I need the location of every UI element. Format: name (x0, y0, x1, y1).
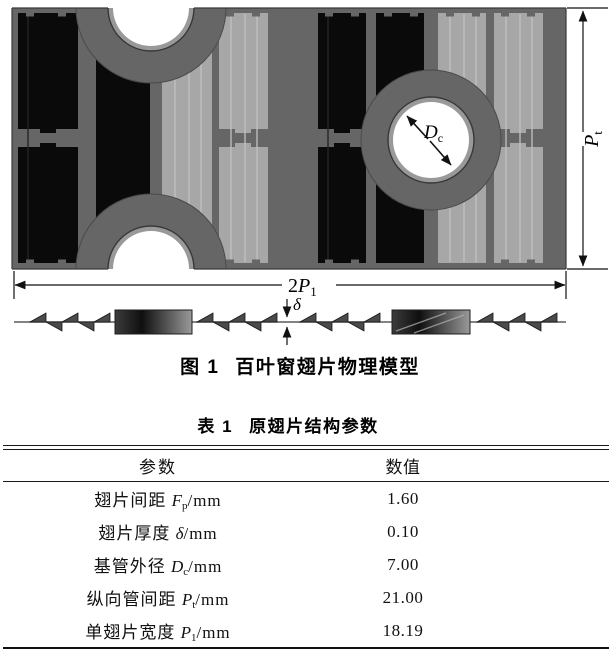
table-row: 翅片间距 Fp/mm 1.60 (3, 482, 609, 515)
column-header-value: 数值 (313, 453, 493, 478)
value-cell: 21.00 (313, 588, 493, 608)
parameter-cell: 翅片间距 Fp/mm (3, 486, 313, 512)
value-cell: 0.10 (313, 522, 493, 542)
figure-caption: 图 1百叶窗翅片物理模型 (0, 352, 600, 379)
parameter-cell: 翅片厚度 δ/mm (3, 519, 313, 544)
column-header-parameter: 参数 (3, 453, 313, 478)
table-bottom-rule (3, 647, 609, 649)
table-row: 单翅片宽度 P1/mm 18.19 (3, 614, 609, 647)
tube-section-block (392, 310, 470, 334)
table-title: 表 1原翅片结构参数 (0, 412, 576, 437)
fin-model-drawing: Dc Pt 2P1 (0, 0, 612, 348)
value-cell: 1.60 (313, 489, 493, 509)
table-row: 基管外径 Dc/mm 7.00 (3, 548, 609, 581)
parameter-cell: 纵向管间距 Pt/mm (3, 585, 313, 611)
parameter-table: 参数 数值 翅片间距 Fp/mm 1.60 翅片厚度 δ/mm 0.10 基管外… (3, 445, 609, 649)
fin-cross-section: δ (14, 295, 566, 345)
fin-figure: Dc Pt 2P1 (0, 0, 612, 348)
dim-label-pt: Pt (581, 131, 605, 148)
dim-label-delta: δ (293, 295, 302, 314)
tube-section-block (115, 310, 192, 334)
value-cell: 18.19 (313, 621, 493, 641)
figure-caption-text: 百叶窗翅片物理模型 (235, 357, 420, 378)
table-row: 纵向管间距 Pt/mm 21.00 (3, 581, 609, 614)
figure-caption-label: 图 1 (180, 357, 219, 378)
table-row: 翅片厚度 δ/mm 0.10 (3, 515, 609, 548)
value-cell: 7.00 (313, 555, 493, 575)
table-title-label: 表 1 (197, 417, 233, 436)
table-title-text: 原翅片结构参数 (249, 417, 379, 436)
table-header-row: 参数 数值 (3, 450, 609, 481)
parameter-cell: 单翅片宽度 P1/mm (3, 618, 313, 644)
paper-page: Dc Pt 2P1 (0, 0, 612, 658)
parameter-cell: 基管外径 Dc/mm (3, 552, 313, 578)
